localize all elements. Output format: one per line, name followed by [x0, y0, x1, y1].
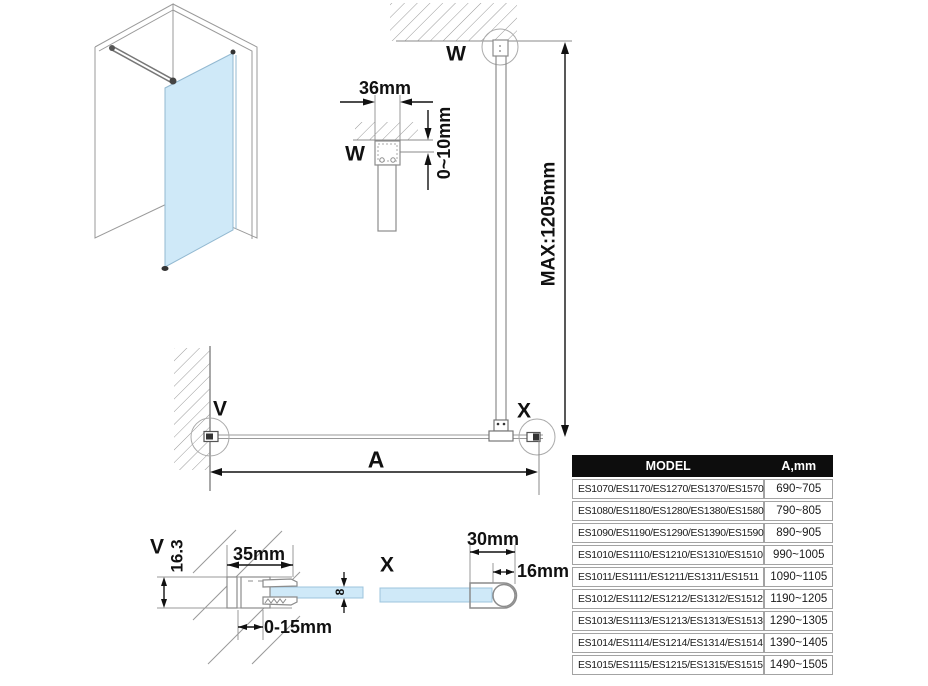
table-row: ES1011/ES1111/ES1211/ES1311/ES15111090~1…	[572, 567, 833, 587]
isometric-view	[95, 4, 257, 271]
model-cell: ES1014/ES1114/ES1214/ES1314/ES1514	[572, 633, 764, 653]
a-mm-cell: 1190~1205	[764, 589, 833, 609]
a-mm-cell: 1390~1405	[764, 633, 833, 653]
model-cell: ES1011/ES1111/ES1211/ES1311/ES1511	[572, 567, 764, 587]
ceiling-hatch	[390, 3, 517, 41]
dim-label-a: A	[368, 449, 385, 472]
dim-label-0-10mm: 0~10mm	[435, 107, 453, 180]
table-row: ES1010/ES1110/ES1210/ES1310/ES1510990~10…	[572, 545, 833, 565]
dim-label-8: 8	[334, 589, 346, 596]
a-mm-cell: 890~905	[764, 523, 833, 543]
table-row: ES1012/ES1112/ES1212/ES1312/ES15121190~1…	[572, 589, 833, 609]
table-row: ES1014/ES1114/ES1214/ES1314/ES15141390~1…	[572, 633, 833, 653]
model-table-body: ES1070/ES1170/ES1270/ES1370/ES1570690~70…	[572, 479, 833, 675]
model-cell: ES1015/ES1115/ES1215/ES1315/ES1515	[572, 655, 764, 675]
model-cell: ES1010/ES1110/ES1210/ES1310/ES1510	[572, 545, 764, 565]
detail-x-section	[380, 545, 517, 608]
a-mm-cell: 1090~1105	[764, 567, 833, 587]
dim-label-30mm: 30mm	[467, 530, 519, 548]
table-row: ES1015/ES1115/ES1215/ES1315/ES15151490~1…	[572, 655, 833, 675]
bottom-foot	[162, 266, 169, 271]
a-mm-cell: 790~805	[764, 501, 833, 521]
bar-clamp	[494, 420, 508, 431]
wall-profile	[227, 577, 237, 608]
model-cell: ES1070/ES1170/ES1270/ES1370/ES1570	[572, 479, 764, 499]
wall-hatch	[174, 348, 210, 470]
a-mm-cell: 1290~1305	[764, 611, 833, 631]
dim-label-0-15mm: 0-15mm	[264, 618, 332, 636]
glass-panel	[165, 53, 233, 267]
table-row: ES1013/ES1113/ES1213/ES1313/ES15131290~1…	[572, 611, 833, 631]
detail-label-x-section: X	[380, 555, 394, 576]
model-cell: ES1090/ES1190/ES1290/ES1390/ES1590	[572, 523, 764, 543]
detail-label-v-plan: V	[213, 399, 227, 420]
a-mm-cell: 990~1005	[764, 545, 833, 565]
table-row: ES1090/ES1190/ES1290/ES1390/ES1590890~90…	[572, 523, 833, 543]
technical-drawing-page: 36mm W 0~10mm W MAX:1205mm V X A V 16.3 …	[0, 0, 928, 686]
bar-stub	[378, 165, 396, 231]
top-cap	[231, 50, 236, 55]
dim-label-16mm: 16mm	[517, 562, 569, 580]
model-cell: ES1012/ES1112/ES1212/ES1312/ES1512	[572, 589, 764, 609]
a-mm-cell: 1490~1505	[764, 655, 833, 675]
model-cell: ES1080/ES1180/ES1280/ES1380/ES1580	[572, 501, 764, 521]
clamp-top-lip	[263, 579, 297, 587]
table-row: ES1080/ES1180/ES1280/ES1380/ES1580790~80…	[572, 501, 833, 521]
detail-label-w-elev: W	[345, 144, 365, 165]
glass-section-v	[266, 587, 363, 598]
model-table: MODEL A,mm ES1070/ES1170/ES1270/ES1370/E…	[572, 453, 833, 677]
detail-label-x-plan: X	[517, 401, 531, 422]
dim-label-max: MAX:1205mm	[540, 162, 559, 287]
glass-section-x	[380, 588, 492, 602]
end-profile-tube	[493, 585, 515, 607]
support-bar	[109, 45, 177, 85]
model-cell: ES1013/ES1113/ES1213/ES1313/ES1513	[572, 611, 764, 631]
ceiling-mount	[493, 40, 508, 56]
header-model: MODEL	[572, 455, 764, 477]
table-row: ES1070/ES1170/ES1270/ES1370/ES1570690~70…	[572, 479, 833, 499]
plan-view	[174, 346, 555, 495]
detail-label-w-plan: W	[446, 44, 466, 65]
header-a-mm: A,mm	[764, 455, 833, 477]
ceiling-hatch-small	[355, 122, 418, 140]
bar-clamp-base	[489, 431, 513, 441]
a-mm-cell: 690~705	[764, 479, 833, 499]
detail-label-v-section: V	[150, 537, 164, 558]
dim-label-36mm: 36mm	[359, 79, 411, 97]
dim-label-16-3: 16.3	[169, 539, 186, 572]
table-header-row: MODEL A,mm	[572, 455, 833, 477]
dim-label-35mm: 35mm	[233, 545, 285, 563]
